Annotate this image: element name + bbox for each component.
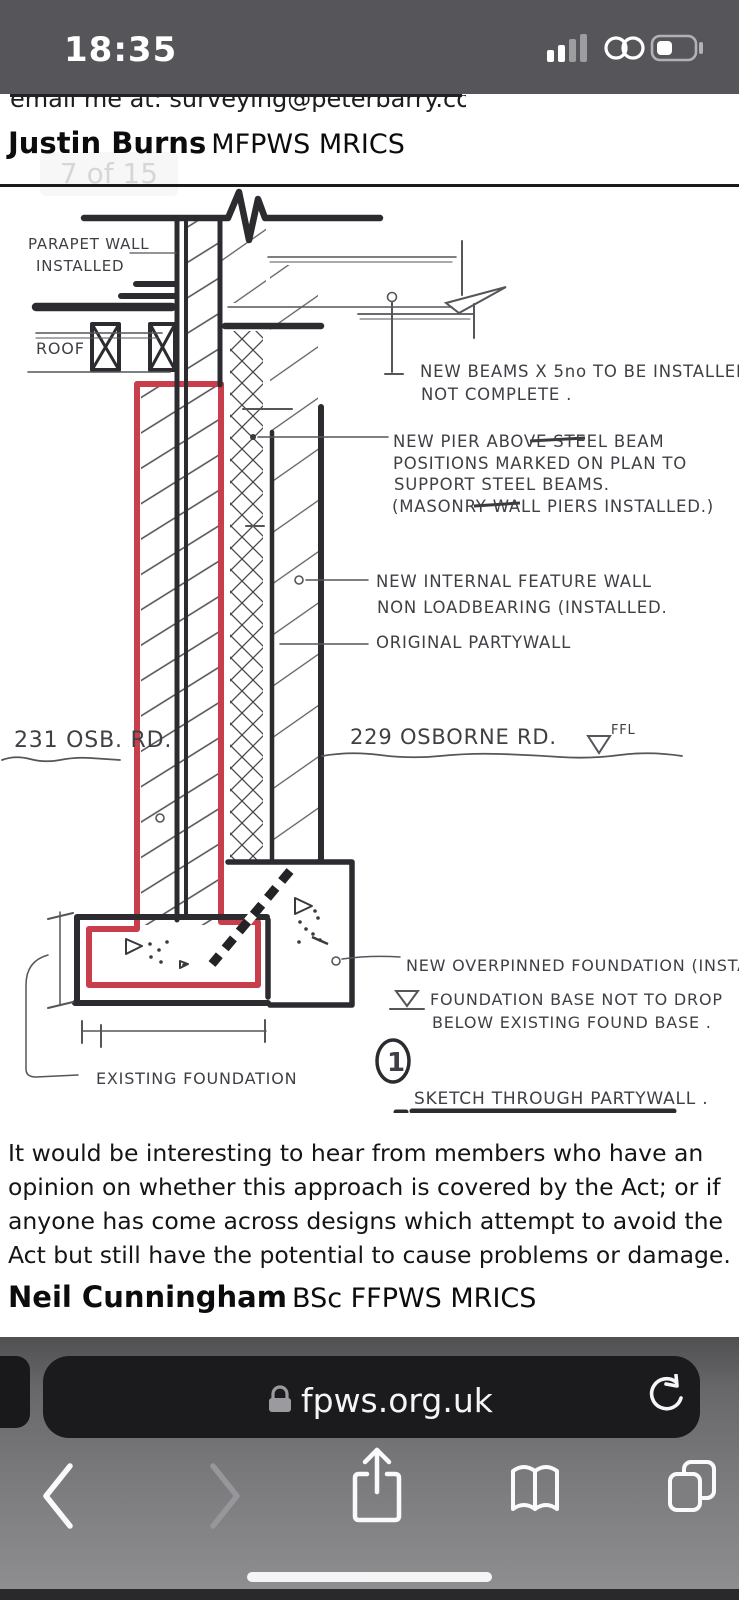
status-bar: 18:35 (0, 0, 739, 94)
figure-number: 1 (387, 1048, 406, 1078)
status-time: 18:35 (64, 30, 177, 70)
svg-text:(MASONRY WALL PIERS INSTALLED.: (MASONRY WALL PIERS INSTALLED.) (392, 497, 714, 516)
body-paragraph: It would be interesting to hear from mem… (8, 1136, 735, 1272)
label-caption: SKETCH THROUGH PARTYWALL . (414, 1089, 709, 1109)
label-original-wall: ORIGINAL PARTYWALL (376, 633, 571, 652)
svg-text:NON LOADBEARING (INSTALLED.: NON LOADBEARING (INSTALLED. (377, 598, 668, 617)
label-feature-wall: NEW INTERNAL FEATURE WALL (376, 572, 652, 591)
back-icon[interactable] (36, 1458, 84, 1534)
author-heading-top: Justin Burns MFPWS MRICS (8, 126, 405, 160)
bookmarks-icon[interactable] (506, 1462, 566, 1518)
iphone-screen: 18:35 email me at: surveying@peterbarry.… (0, 0, 739, 1600)
label-229: 229 OSBORNE RD. (350, 725, 557, 749)
forward-icon[interactable] (199, 1458, 247, 1534)
svg-text:BELOW EXISTING FOUND BASE .: BELOW EXISTING FOUND BASE . (432, 1013, 712, 1032)
label-231: 231 OSB. RD. (14, 728, 172, 753)
status-icons (540, 28, 710, 68)
lock-icon (268, 1385, 292, 1413)
author-credentials: BSc FFPWS MRICS (292, 1283, 536, 1314)
adjacent-tab-sliver[interactable] (0, 1356, 30, 1428)
reload-icon[interactable] (642, 1374, 688, 1420)
cellular-signal-icon (547, 34, 587, 62)
label-new-pier: NEW PIER ABOVE STEEL BEAM (393, 432, 664, 451)
label-new-beams: NEW BEAMS X 5no TO BE INSTALLED (420, 362, 739, 381)
party-wall-sketch: PARAPET WALL INSTALLED ROOF NEW BEAMS X … (0, 185, 739, 1113)
email-clip-line (10, 94, 462, 97)
svg-text:SUPPORT STEEL BEAMS.: SUPPORT STEEL BEAMS. (394, 475, 610, 494)
tabs-icon[interactable] (660, 1456, 724, 1524)
label-foundation-base: FOUNDATION BASE NOT TO DROP (430, 990, 723, 1009)
email-text: email me at: surveying@peterbarry.co.uk (10, 95, 466, 113)
home-indicator[interactable] (247, 1572, 492, 1582)
label-roof: ROOF (36, 339, 85, 358)
link-icon (606, 38, 643, 58)
svg-text:INSTALLED: INSTALLED (36, 257, 124, 275)
author-heading-bottom: Neil Cunningham BSc FFPWS MRICS (8, 1280, 536, 1314)
author-name: Justin Burns (8, 126, 206, 160)
svg-text:NOT COMPLETE .: NOT COMPLETE . (421, 385, 572, 404)
url-text: fpws.org.uk (301, 1381, 493, 1420)
label-parapet: PARAPET WALL (28, 235, 149, 253)
author-name: Neil Cunningham (8, 1280, 287, 1314)
share-icon[interactable] (347, 1444, 407, 1532)
label-overpin: NEW OVERPINNED FOUNDATION (INSTALLED) (406, 956, 739, 975)
sketch-labels: PARAPET WALL INSTALLED ROOF NEW BEAMS X … (14, 235, 739, 1109)
battery-icon (652, 36, 703, 60)
label-ffl: FFL (611, 723, 636, 738)
label-existing-foundation: EXISTING FOUNDATION (96, 1069, 297, 1088)
screen-bottom-strip (0, 1589, 739, 1600)
author-credentials: MFPWS MRICS (211, 129, 405, 160)
svg-text:POSITIONS MARKED ON PLAN TO: POSITIONS MARKED ON PLAN TO (393, 454, 687, 473)
clipped-email-line: email me at: surveying@peterbarry.co.uk (10, 95, 466, 116)
